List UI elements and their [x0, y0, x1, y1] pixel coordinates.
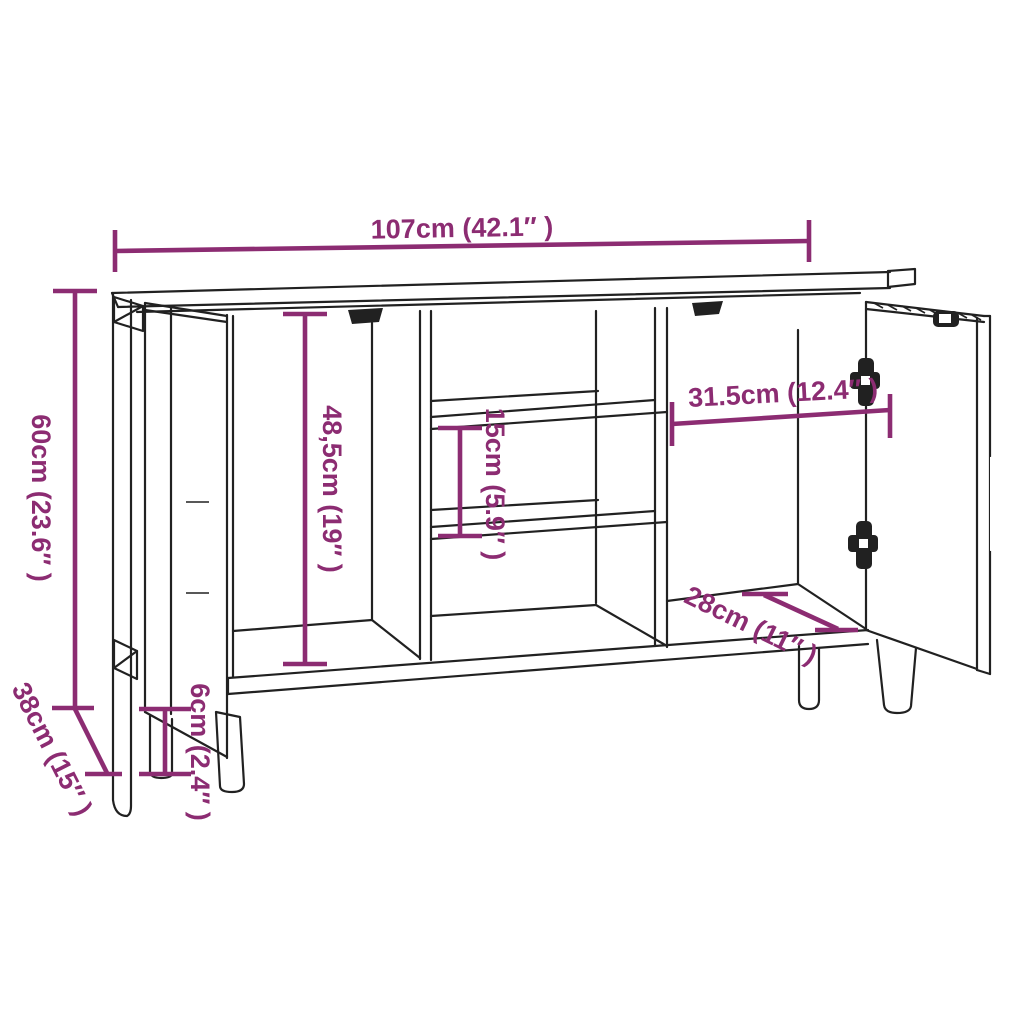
dim-shelf-spacing-label: 15cm (5.9″ ): [480, 408, 510, 561]
right-door: [848, 302, 1009, 674]
floor-corner-middle: [596, 605, 667, 646]
left-door-handle-bar: [183, 494, 212, 600]
dim-leg-height-label: 6cm (2.4″ ): [185, 683, 215, 821]
dim-overall-depth-label: 38cm (15″ ): [6, 678, 99, 821]
left-door-handle: [183, 494, 212, 600]
cabinet-drawing: [112, 269, 1009, 816]
floor-corner-right: [798, 584, 866, 629]
right-door-bottom-edge: [866, 630, 977, 669]
dim-shelf-spacing: 15cm (5.9″ ): [438, 408, 510, 561]
dim-overall-height-label: 60cm (23.6″ ): [26, 414, 56, 582]
dim-line: [75, 709, 107, 773]
floor-back-left: [233, 620, 372, 631]
shelf1-back-edge: [431, 391, 598, 401]
sideboard-dimension-diagram: 107cm (42.1″ ) 60cm (23.6″ ) 38cm (15″ )…: [0, 0, 1024, 1024]
top-panel: [112, 269, 915, 312]
dim-overall-width-label: 107cm (42.1″ ): [370, 211, 553, 244]
dim-overall-depth: 38cm (15″ ): [6, 678, 122, 821]
dim-door-compartment-height-label: 48,5cm (19″ ): [317, 405, 347, 573]
right-door-handle: [990, 455, 1009, 551]
hinge-bottom: [848, 521, 878, 569]
dim-overall-width: 107cm (42.1″ ): [115, 211, 809, 272]
technical-drawing-svg: 107cm (42.1″ ) 60cm (23.6″ ) 38cm (15″ )…: [0, 0, 1024, 1024]
left-door-outer-stile: [113, 294, 131, 816]
shelf2-back-edge: [431, 500, 598, 510]
left-bottom-rail-edge: [114, 651, 137, 668]
door-catch-left: [348, 308, 383, 324]
middle-shelves: [431, 391, 667, 539]
floor-back-middle: [431, 605, 596, 616]
dim-middle-compartment-width: 31.5cm (12.4″ ): [672, 373, 890, 446]
right-door-catch: [933, 311, 959, 327]
right-door-top-edge1: [866, 302, 984, 316]
top-panel-right-tab: [888, 269, 915, 287]
dim-overall-height: 60cm (23.6″ ): [26, 291, 97, 708]
left-top-rail-edge: [114, 306, 143, 322]
top-rail-edge: [137, 293, 860, 312]
leg-front-left: [216, 712, 244, 792]
right-door-top-edge2: [866, 309, 984, 322]
floor-corner-left: [372, 620, 420, 658]
dim-middle-compartment-width-label: 31.5cm (12.4″ ): [687, 373, 878, 413]
leg-front-right: [877, 640, 916, 713]
top-panel-front-edge: [118, 288, 890, 307]
right-door-bottom-cap: [977, 670, 990, 674]
dim-door-compartment-height: 48,5cm (19″ ): [283, 314, 347, 664]
door-catch-middle: [692, 301, 723, 316]
